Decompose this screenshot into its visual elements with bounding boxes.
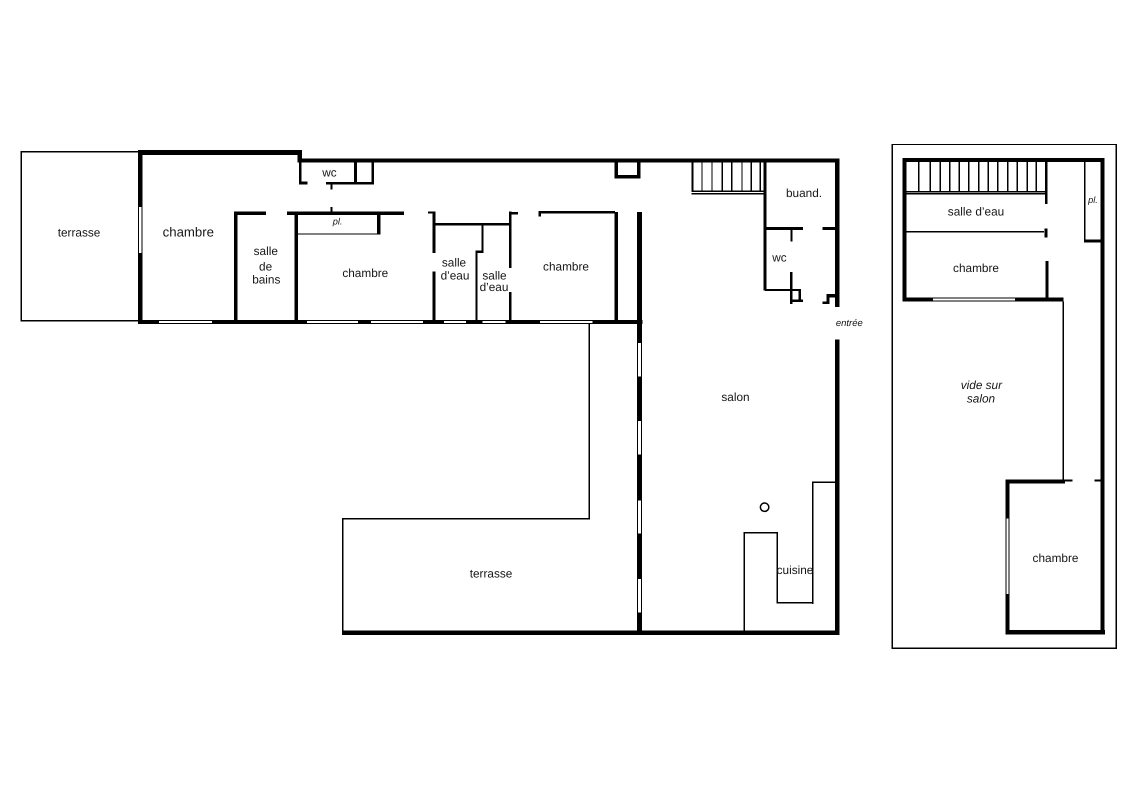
svg-text:vide sur: vide sur: [961, 378, 1003, 392]
svg-text:chambre: chambre: [342, 266, 388, 280]
svg-text:salle d’eau: salle d’eau: [948, 205, 1004, 219]
svg-text:buand.: buand.: [786, 186, 822, 200]
svg-text:terrasse: terrasse: [470, 567, 513, 581]
svg-text:salon: salon: [721, 390, 749, 404]
svg-text:d’eau: d’eau: [480, 280, 509, 294]
svg-text:pl.: pl.: [1087, 195, 1098, 205]
svg-text:salle: salle: [442, 256, 467, 270]
svg-text:de: de: [259, 260, 273, 274]
svg-text:bains: bains: [252, 273, 280, 287]
svg-text:wc: wc: [771, 250, 787, 264]
svg-text:pl.: pl.: [332, 217, 343, 227]
svg-text:chambre: chambre: [163, 225, 214, 240]
svg-text:d’eau: d’eau: [441, 269, 470, 283]
svg-text:chambre: chambre: [953, 261, 999, 275]
svg-text:salon: salon: [967, 392, 996, 406]
svg-text:terrasse: terrasse: [58, 226, 101, 240]
svg-text:wc: wc: [321, 165, 337, 179]
svg-text:chambre: chambre: [543, 260, 589, 274]
svg-text:salle: salle: [254, 244, 279, 258]
svg-text:chambre: chambre: [1033, 551, 1079, 565]
svg-text:entrée: entrée: [836, 318, 863, 329]
svg-text:cuisine: cuisine: [777, 563, 814, 577]
